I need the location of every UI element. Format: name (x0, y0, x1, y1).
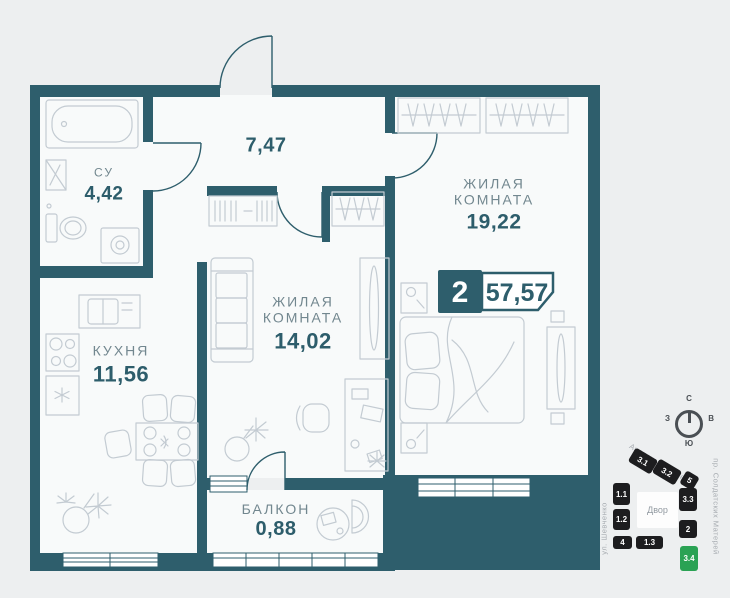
building-tile-3-3[interactable]: 3.3 (679, 488, 697, 511)
compass-needle-icon (688, 412, 691, 423)
street-label: пр. Солдатских Матерей (712, 447, 721, 567)
compass-east-label: В (708, 414, 714, 423)
building-tile-4[interactable]: 4 (613, 536, 632, 549)
apartment-badge: 2 57,57 (438, 270, 553, 313)
compass-west-label: З (665, 414, 670, 423)
bedroom-window (418, 478, 530, 497)
street-label: ул. Шевченко (600, 491, 609, 567)
building-tile-3-4-selected[interactable]: 3.4 (680, 546, 698, 571)
compass: С З В Ю (664, 394, 714, 450)
building-tile-1-2[interactable]: 1.2 (613, 509, 630, 530)
compass-north-label: С (664, 394, 714, 403)
building-tile-1-1[interactable]: 1.1 (613, 483, 630, 505)
badge-total-area: 57,57 (486, 279, 549, 307)
building-tile-1-3[interactable]: 1.3 (636, 536, 663, 549)
badge-rooms-count: 2 (452, 276, 469, 309)
living-window (210, 476, 247, 492)
building-tile-2[interactable]: 2 (679, 520, 697, 538)
entrance-door (220, 36, 272, 88)
balcony-glazing (213, 553, 378, 567)
courtyard-label: Двор (637, 492, 678, 528)
compass-south-label: Ю (664, 439, 714, 448)
floorplan-page: 2 57,57 СУ 4,42 КУХНЯ 11,56 7,47 ЖИЛАЯ К… (0, 0, 730, 598)
